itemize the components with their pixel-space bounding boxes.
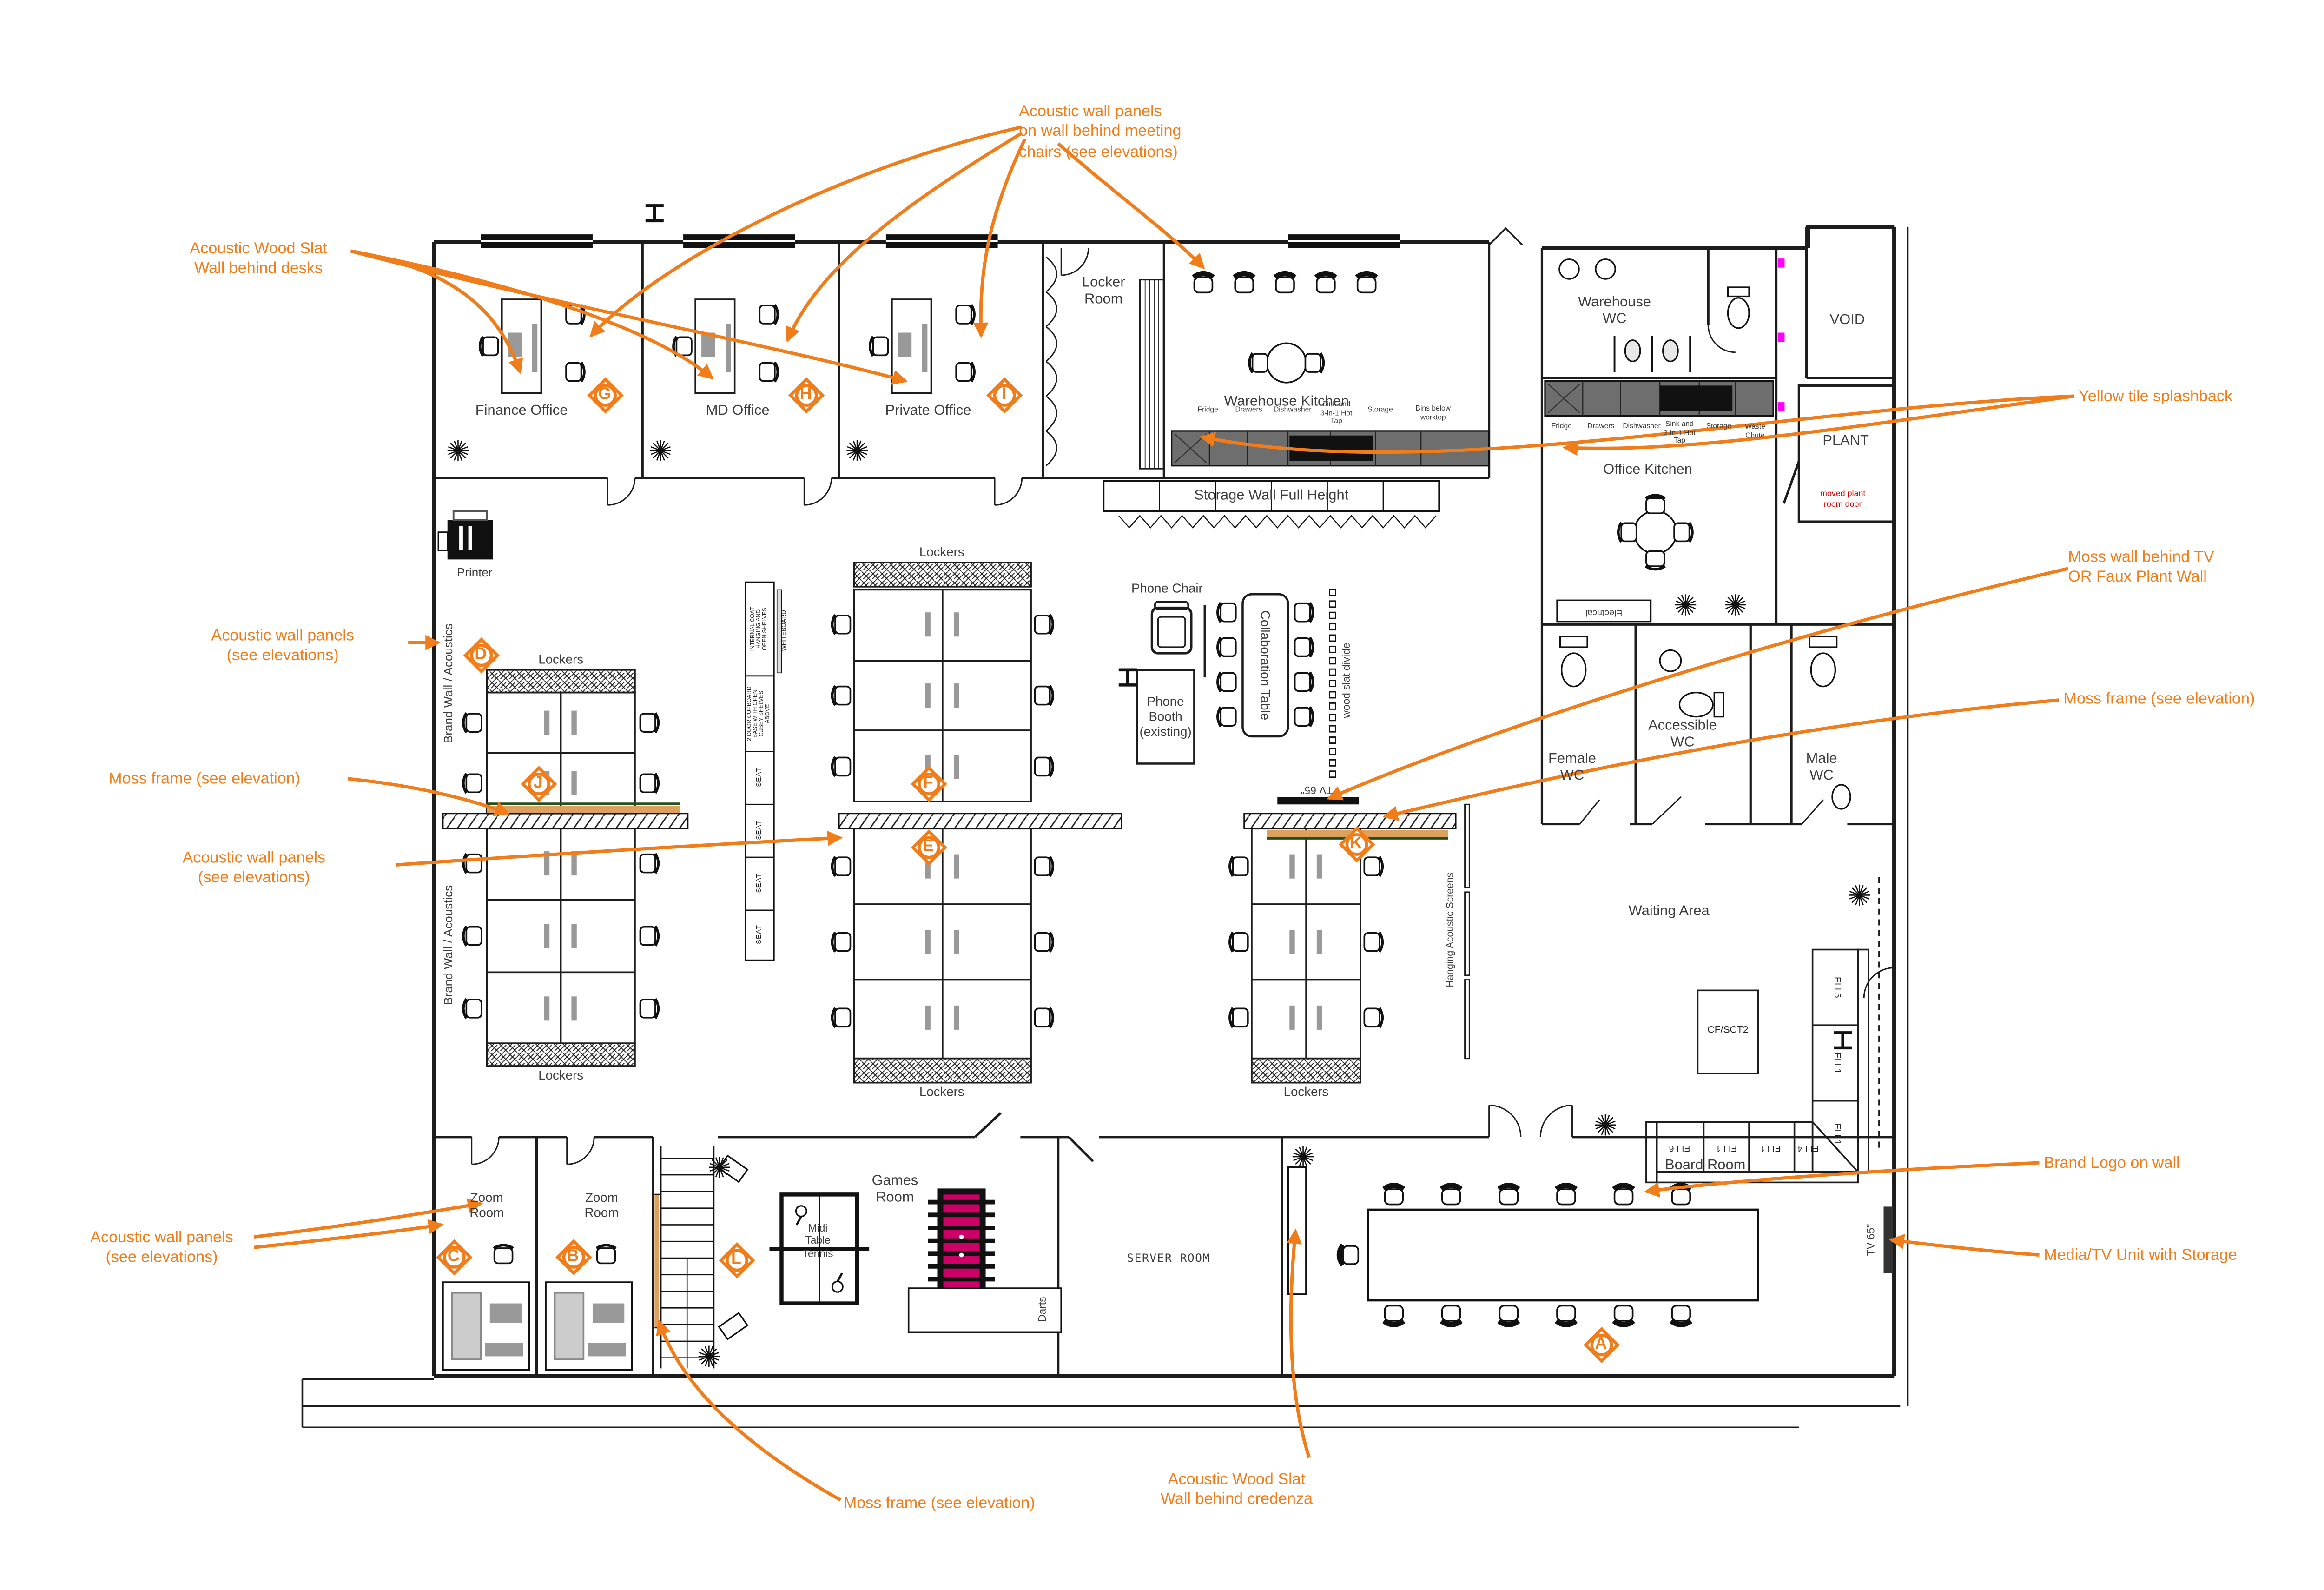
marker-G: G — [588, 378, 621, 411]
sofa-ell1-d: ELL1 — [1760, 1141, 1781, 1152]
annotation-wood-slat-credenza: Acoustic Wood Slat Wall behind credenza — [1131, 1471, 1342, 1511]
label-darts: Darts — [1038, 1297, 1051, 1322]
wk-storage: Storage — [1367, 407, 1393, 416]
ok-drawers: Drawers — [1587, 424, 1614, 432]
room-male-wc: Male WC — [1806, 751, 1837, 785]
spine-seat-2: SEAT — [755, 821, 763, 840]
annotation-panels-bottom-left: Acoustic wall panels (see elevations) — [64, 1229, 260, 1269]
marker-E: E — [911, 830, 945, 864]
floor-plan-page: Acoustic Wood Slat Wall behind desks Aco… — [0, 0, 2324, 1590]
label-brand-wall-2: Brand Wall / Acoustics — [442, 885, 456, 1005]
ok-storage: Storage — [1706, 424, 1732, 432]
annotation-wood-slat-desks: Acoustic Wood Slat Wall behind desks — [159, 240, 358, 280]
annotation-yellow-tile: Yellow tile splashback — [2079, 388, 2232, 408]
marker-B: B — [556, 1240, 590, 1273]
room-board-room: Board Room — [1665, 1157, 1745, 1174]
room-md-office: MD Office — [706, 403, 770, 420]
board-room-furniture — [1288, 1167, 1893, 1325]
label-lockers-2: Lockers — [919, 544, 964, 560]
sofa-ell1-b: ELL1 — [1830, 1124, 1841, 1145]
marker-C: C — [437, 1240, 470, 1273]
wk-dishwasher: Dishwasher — [1274, 407, 1312, 416]
room-zoom-room-1: Zoom Room — [469, 1190, 504, 1220]
room-accessible-wc: Accessible WC — [1648, 718, 1717, 752]
label-lockers-1: Lockers — [538, 651, 583, 667]
label-wood-slat-divide: wood slat divide — [1342, 643, 1354, 718]
note-moved-plant-door: moved plant room door — [1820, 490, 1865, 511]
sofa-ell4: ELL4 — [1797, 1141, 1819, 1152]
room-plant: PLANT — [1822, 433, 1869, 450]
ok-waste-chute: Waste Chute — [1745, 424, 1765, 441]
label-hanging-screens: Hanging Acoustic Screens — [1446, 873, 1457, 987]
label-brand-wall-1: Brand Wall / Acoustics — [442, 623, 456, 743]
label-storage-wall: Storage Wall Full Height — [1194, 487, 1348, 504]
sofa-ell1-c: ELL1 — [1716, 1141, 1737, 1152]
label-printer: Printer — [457, 566, 493, 580]
room-locker-room: Locker Room — [1082, 275, 1125, 309]
label-phone-chair: Phone Chair — [1131, 581, 1203, 596]
spine-seat-3: SEAT — [755, 873, 763, 893]
annotation-moss-frame-right: Moss frame (see elevation) — [2064, 690, 2255, 710]
label-electrical: Electrical — [1585, 605, 1622, 616]
label-tv65-board: TV 65" — [1867, 1224, 1879, 1256]
room-finance-office: Finance Office — [475, 403, 568, 420]
office-kitchen-fittings — [1545, 381, 1773, 622]
room-private-office: Private Office — [885, 403, 971, 420]
printer-icon — [438, 511, 493, 559]
marker-H: H — [789, 378, 823, 411]
label-collaboration-table: Collaboration Table — [1258, 610, 1273, 720]
floor-plan-drawing — [0, 0, 2324, 1590]
label-lockers-3: Lockers — [538, 1067, 583, 1083]
annotation-panels-left-top: Acoustic wall panels (see elevations) — [154, 627, 411, 667]
annotation-media-tv: Media/TV Unit with Storage — [2044, 1246, 2237, 1267]
spine-cupboard: 2 DOOR CUPBOARD BASE WITH OPEN CUBBY SHE… — [746, 686, 772, 741]
room-server-room: SERVER ROOM — [1127, 1251, 1210, 1265]
spine-seat-1: SEAT — [755, 768, 763, 787]
label-phone-booth: Phone Booth (existing) — [1140, 694, 1192, 740]
ok-dishwasher: Dishwasher — [1623, 424, 1661, 432]
room-warehouse-wc: Warehouse WC — [1578, 294, 1651, 329]
room-office-kitchen: Office Kitchen — [1603, 462, 1692, 479]
spine-coat-hanging: INTERNAL COAT HANGING AND OPEN SHELVES — [750, 607, 768, 651]
label-tv65-k: TV 65" — [1301, 782, 1333, 794]
room-zoom-room-2: Zoom Room — [585, 1190, 619, 1220]
annotation-moss-frame-left: Moss frame (see elevation) — [109, 770, 300, 790]
marker-I: I — [987, 378, 1021, 411]
wk-drawers: Drawers — [1235, 407, 1262, 416]
label-table-tennis: Midi Table Tennis — [803, 1224, 833, 1262]
annotation-moss-frame-bottom: Moss frame (see elevation) — [844, 1494, 1035, 1515]
room-void: VOID — [1830, 312, 1865, 329]
marker-J: J — [522, 767, 555, 800]
label-lockers-5: Lockers — [1284, 1084, 1329, 1100]
moss-bands — [443, 797, 1456, 838]
wk-bins: Bins below worktop — [1416, 406, 1451, 423]
wk-fridge: Fridge — [1198, 407, 1218, 416]
sofa-table-cfsct2: CF/SCT2 — [1707, 1025, 1748, 1037]
annotation-panels-left-mid: Acoustic wall panels (see elevations) — [125, 849, 383, 889]
spine-seat-4: SEAT — [755, 925, 763, 944]
sofa-ell6: ELL6 — [1669, 1141, 1690, 1152]
wood-slat-divide-dashes — [1329, 590, 1335, 777]
marker-F: F — [911, 767, 945, 800]
label-lockers-4: Lockers — [919, 1084, 964, 1100]
marker-K: K — [1340, 827, 1373, 861]
marker-D: D — [464, 638, 497, 672]
marker-A: A — [1585, 1328, 1618, 1361]
floor-plan-stage: Acoustic Wood Slat Wall behind desks Aco… — [0, 0, 2324, 1590]
ok-sink: Sink and 3-in-1 Hot Tap — [1664, 422, 1696, 447]
annotation-moss-wall-tv: Moss wall behind TV OR Faux Plant Wall — [2068, 548, 2214, 589]
ok-fridge: Fridge — [1552, 424, 1572, 432]
magenta-dots — [1778, 258, 1785, 411]
room-games-room: Games Room — [872, 1173, 918, 1207]
sofa-ell5: ELL5 — [1830, 977, 1841, 998]
annotation-meeting-chairs: Acoustic wall panels on wall behind meet… — [1019, 103, 1230, 164]
spine-whiteboard: WHITEBOARD — [781, 610, 788, 651]
marker-L: L — [720, 1243, 753, 1276]
room-waiting-area: Waiting Area — [1629, 903, 1710, 921]
room-female-wc: Female WC — [1548, 751, 1596, 785]
annotation-brand-logo: Brand Logo on wall — [2044, 1154, 2179, 1174]
wk-sink: Sink and 3-in-1 Hot Tap — [1320, 402, 1353, 427]
sofa-ell1-a: ELL1 — [1830, 1053, 1841, 1074]
